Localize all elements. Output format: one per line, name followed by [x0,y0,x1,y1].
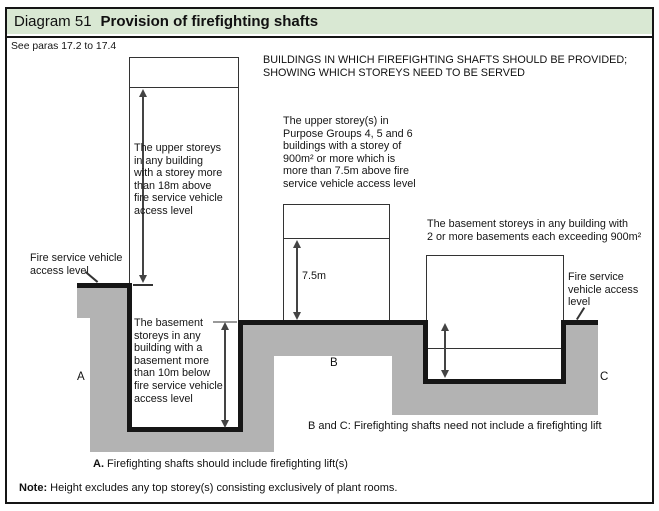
top-caption: BUILDINGS IN WHICH FIREFIGHTING SHAFTS S… [263,54,643,80]
basement-c-right-wall [561,320,566,384]
basement-a-right-wall [238,320,243,432]
arrow-line [224,327,225,423]
diagram-header: Diagram 51Provision of firefighting shaf… [7,9,652,34]
diagram-title: Provision of firefighting shafts [101,13,319,30]
basement-c-floor [423,379,566,384]
label-building-a: A [77,371,85,383]
ground-line-left [77,283,127,288]
arrow-line [444,328,445,373]
header-rule [7,36,652,38]
note-prefix: Note: [19,482,47,494]
reference-note: See paras 17.2 to 17.4 [11,41,116,54]
ground-left-upper [77,285,130,318]
building-a-ground-tick [133,284,153,286]
caption-a: A. Firefighting shafts should include fi… [93,458,348,471]
building-a-upper-annotation: The upper storeys in any building with a… [134,142,236,218]
caption-a-text: Firefighting shafts should include firef… [104,458,348,470]
label-building-c: C [600,371,608,383]
basement-a-depth-arrow [219,322,231,428]
note: Note: Height excludes any top storey(s) … [19,482,397,495]
building-c-outline [426,255,564,322]
caption-b-and-c: B and C: Firefighting shafts need not in… [308,420,602,433]
building-b-height-label: 7.5m [302,270,326,283]
label-building-b: B [330,357,338,369]
diagram-number: Diagram 51 [14,13,92,30]
ground-under-b [274,322,392,356]
building-b-annotation: The upper storey(s) in Purpose Groups 4,… [283,115,443,191]
arrow-line [296,245,297,315]
basement-c-depth-arrow [439,323,451,378]
note-text: Height excludes any top storey(s) consis… [47,482,397,494]
ground-line-middle [243,320,423,325]
ground-right-of-a [243,322,274,452]
building-c-annotation: The basement storeys in any building wit… [427,218,652,243]
diagram-canvas: Diagram 51Provision of firefighting shaf… [0,0,659,511]
basement-c-left-wall [423,320,428,384]
ground-line-right [566,320,598,325]
caption-a-prefix: A. [93,458,104,470]
access-level-label-right: Fire service vehicle access level [568,271,638,309]
access-level-label-left: Fire service vehicle access level [30,252,122,277]
basement-a-left-wall [127,283,132,432]
